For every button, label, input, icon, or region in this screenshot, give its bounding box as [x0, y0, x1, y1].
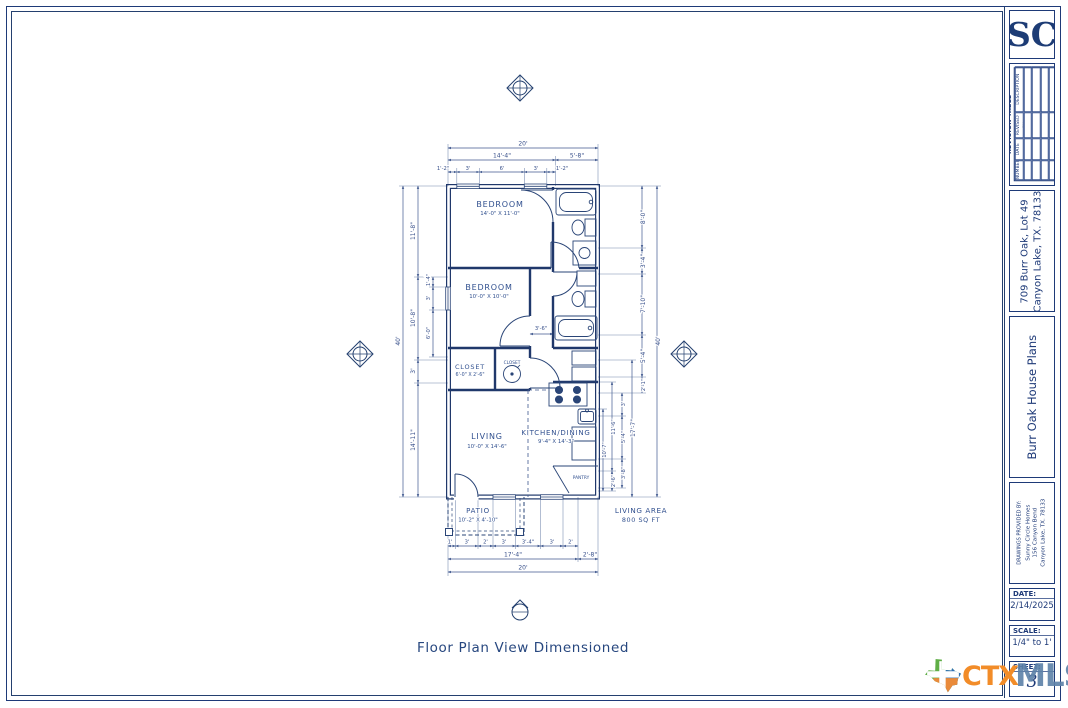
date-box: DATE: 2/14/2025: [1009, 588, 1055, 621]
room-size: 10'-0" X 10'-0": [469, 294, 509, 300]
dim-label: 6': [500, 166, 505, 172]
drawing-caption: Floor Plan View Dimensioned: [417, 640, 629, 656]
exterior-walls: [447, 185, 600, 499]
scale-value: 1/4" to 1': [1010, 636, 1054, 648]
patio-post: [517, 529, 524, 536]
dim-label: 3'-8": [621, 467, 627, 479]
dim-label: 3': [550, 540, 555, 546]
date-label: DATE:: [1010, 589, 1054, 599]
doors: [455, 190, 579, 497]
revision-cell: [1023, 139, 1032, 161]
provider-name: Sunny Circle Homes: [1025, 499, 1033, 567]
revision-col-header: DATE: [1015, 139, 1024, 161]
toilet-2-tank: [585, 291, 596, 307]
utility-cabinets: [572, 351, 596, 381]
firm-logo-box: SC: [1009, 10, 1055, 59]
revision-cell: [1049, 139, 1055, 161]
revision-cell: [1032, 161, 1041, 181]
dim-label: 10'-7": [602, 442, 608, 458]
section-callout-bottom: [512, 600, 528, 620]
dim-label: 3': [534, 166, 539, 172]
dim-label: 2'-6": [611, 475, 617, 487]
dim-label: 3': [621, 402, 627, 407]
windows: [445, 183, 563, 500]
elevation-marker-right: [671, 341, 697, 367]
dim-label: 20': [518, 565, 528, 572]
revision-cell: [1049, 113, 1055, 139]
dim-label: 1': [448, 540, 453, 546]
living-area-note: LIVING AREA: [615, 506, 667, 515]
patio-post: [446, 529, 453, 536]
dim-label: 3': [426, 296, 432, 301]
dim-label: 3'-6": [535, 326, 547, 332]
dim-label: 14'-4": [493, 153, 511, 160]
living-area-sqft: 800 SQ FT: [622, 516, 660, 524]
provided-by-label: DRAWINGS PROVIDED BY:: [1016, 499, 1023, 567]
mls-logo-text: MLS: [1015, 658, 1068, 694]
linen-cabinet: [577, 271, 596, 286]
toilet-1-tank: [585, 219, 596, 236]
toilet-2-bowl: [572, 292, 584, 307]
revision-cell: [1032, 67, 1041, 113]
toilet-1-bowl: [572, 220, 584, 235]
dim-label: 1'-2": [437, 166, 449, 172]
room-size: 10'-0" X 14'-6": [467, 444, 507, 450]
revision-cell: [1049, 67, 1055, 113]
dim-label: 5'-8": [570, 153, 584, 160]
room-name: PANTRY: [573, 475, 590, 481]
room-name: LIVING: [471, 432, 503, 441]
revision-cell: [1049, 161, 1055, 181]
revision-table-grid: NUMBER DATE REVISED BY DESCRIPTION: [1014, 68, 1055, 182]
provider-street: 156 Canyon Bend: [1033, 499, 1041, 567]
dim-label: 2': [568, 540, 573, 546]
front-door-opening: [454, 494, 479, 501]
dim-label: 1'-2": [556, 166, 568, 172]
dim-label: 3'-4": [640, 254, 647, 268]
project-title: Burr Oak House Plans: [1025, 335, 1039, 460]
dim-label: 5'-4": [621, 431, 627, 443]
room-labels: BEDROOM 14'-0" X 11'-0" BEDROOM 10'-0" X…: [455, 200, 667, 524]
revision-cell: [1040, 113, 1049, 139]
provided-by-box: DRAWINGS PROVIDED BY: Sunny Circle Homes…: [1009, 482, 1055, 584]
elevation-marker-left: [347, 341, 373, 367]
dim-label: 40': [655, 336, 662, 346]
revision-cell: [1032, 113, 1041, 139]
revision-col-header: REVISED BY: [1015, 113, 1024, 139]
dim-label: 3': [410, 368, 417, 374]
ctx-logo-text: CTX: [962, 661, 1018, 692]
provider-city: Canyon Lake, TX. 78133: [1040, 499, 1048, 567]
dim-label: 6'-0": [426, 327, 432, 339]
revision-cell: [1032, 139, 1041, 161]
room-name: CLOSET: [504, 360, 521, 366]
scale-label: SCALE:: [1010, 626, 1054, 636]
room-size: 14'-0" X 11'-0": [480, 211, 520, 217]
stove: [549, 383, 587, 406]
room-size: 10'-2" X 4'-10": [458, 518, 498, 524]
vanity-1: [573, 241, 596, 265]
dim-label: 40': [395, 336, 402, 346]
dim-label: 20': [518, 141, 528, 148]
floor-plan: 20' 14'-4" 5'-8" 1'-2" 3' 6' 3' 1'-2" 1'…: [0, 0, 1004, 708]
dim-label: 10'-8": [410, 309, 417, 327]
dim-label: 3': [466, 166, 471, 172]
dim-label: 11'-8": [410, 222, 417, 240]
room-size: 9'-4" X 14'-3": [538, 439, 574, 445]
room-name: PATIO: [466, 507, 490, 515]
dim-label: 2'-1": [641, 379, 647, 391]
dim-label: 2'-8": [583, 552, 597, 559]
project-title-box: Burr Oak House Plans: [1009, 316, 1055, 478]
revision-table-box: REVISION TABLE NUMBER DATE REVISED BY DE…: [1009, 63, 1055, 186]
revision-cell: [1040, 161, 1049, 181]
dim-label: 3': [502, 540, 507, 546]
bath2-fixtures: [555, 271, 597, 340]
revision-table: REVISION TABLE NUMBER DATE REVISED BY DE…: [1009, 68, 1055, 182]
revision-col-header: DESCRIPTION: [1015, 67, 1024, 113]
dim-label: 8'-0": [640, 210, 647, 224]
bath1-fixtures: [556, 189, 596, 265]
dim-label: 3'-4": [522, 540, 534, 546]
room-name: BEDROOM: [465, 283, 512, 292]
revision-table-title: REVISION TABLE: [1009, 68, 1013, 182]
room-size: 6'-0" X 2'-6": [455, 372, 484, 378]
project-address-box: 709 Burr Oak, Lot 49 Canyon Lake, TX. 78…: [1009, 190, 1055, 312]
revision-cell: [1040, 139, 1049, 161]
room-name: CLOSET: [455, 363, 485, 371]
date-value: 2/14/2025: [1010, 599, 1054, 611]
address-line1: 709 Burr Oak, Lot 49: [1020, 190, 1033, 312]
revision-cell: [1023, 113, 1032, 139]
ctxmls-watermark: CTX MLS: [925, 651, 1068, 701]
room-name: KITCHEN/DINING: [521, 429, 590, 437]
revision-cell: [1023, 161, 1032, 181]
address-line2: Canyon Lake, TX. 78133: [1032, 190, 1045, 312]
revision-cell: [1040, 67, 1049, 113]
dim-label: 7'-10": [640, 295, 647, 313]
pantry-door: [553, 466, 569, 493]
revision-col-header: NUMBER: [1015, 161, 1024, 181]
elevation-marker-top: [507, 75, 533, 101]
dim-label: 11'-6": [611, 419, 617, 435]
dim-label: 2': [483, 540, 488, 546]
revision-cell: [1023, 67, 1032, 113]
water-heater: [504, 365, 521, 383]
patio-outline: [446, 497, 525, 536]
firm-logo: SC: [1009, 15, 1055, 54]
dim-label: 1'-4": [426, 274, 432, 286]
dim-label: 3': [465, 540, 470, 546]
drawing-sheet: 20' 14'-4" 5'-8" 1'-2" 3' 6' 3' 1'-2" 1'…: [0, 0, 1068, 708]
texas-icon: [925, 659, 961, 693]
room-name: BEDROOM: [476, 200, 523, 209]
dim-label: 5'-4": [640, 349, 647, 363]
dim-label: 14'-11": [410, 429, 417, 451]
dim-label: 17'-7": [630, 419, 637, 437]
dim-label: 17'-4": [504, 552, 522, 559]
